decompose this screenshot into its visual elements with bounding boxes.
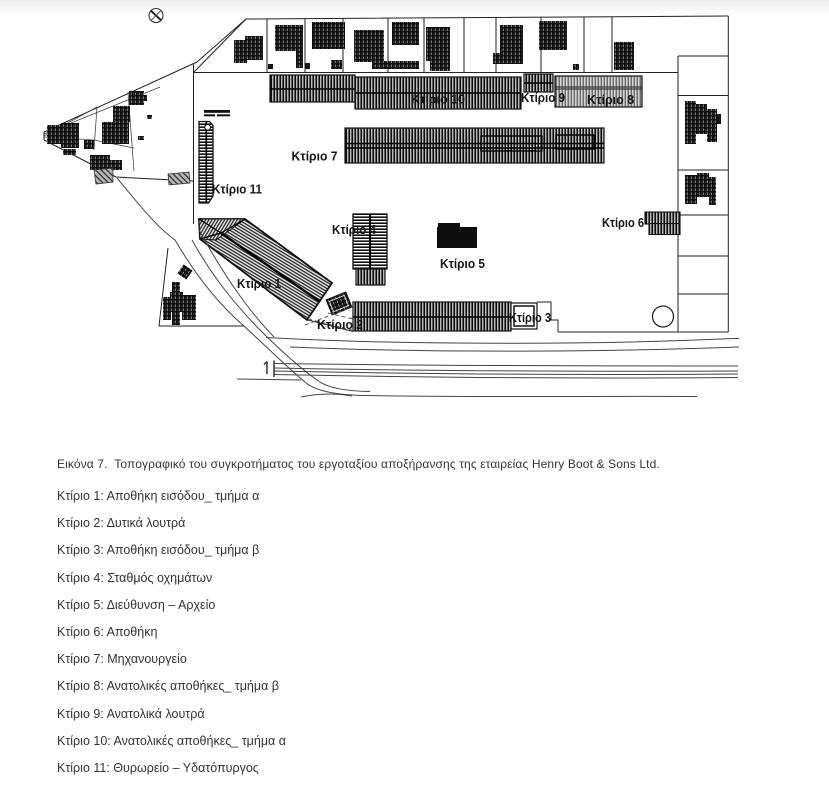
svg-text:Κτίριο 5: Κτίριο 5 (440, 256, 485, 271)
svg-text:Κτίριο 2: Κτίριο 2 (317, 317, 363, 332)
svg-text:Κτίριο 9: Κτίριο 9 (521, 90, 565, 105)
svg-text:Κτίριο 10: Κτίριο 10 (411, 92, 465, 107)
svg-text:Κτίριο 1: Κτίριο 1 (237, 276, 281, 291)
svg-text:Κτίριο 4: Κτίριο 4 (332, 222, 377, 237)
svg-text:Κτίριο 8: Κτίριο 8 (587, 92, 634, 107)
svg-text:Κτίριο 3: Κτίριο 3 (509, 310, 551, 325)
svg-text:Κτίριο 11: Κτίριο 11 (212, 182, 262, 197)
svg-text:Κτίριο 6: Κτίριο 6 (602, 215, 644, 230)
svg-text:Κτίριο 7: Κτίριο 7 (292, 149, 338, 164)
